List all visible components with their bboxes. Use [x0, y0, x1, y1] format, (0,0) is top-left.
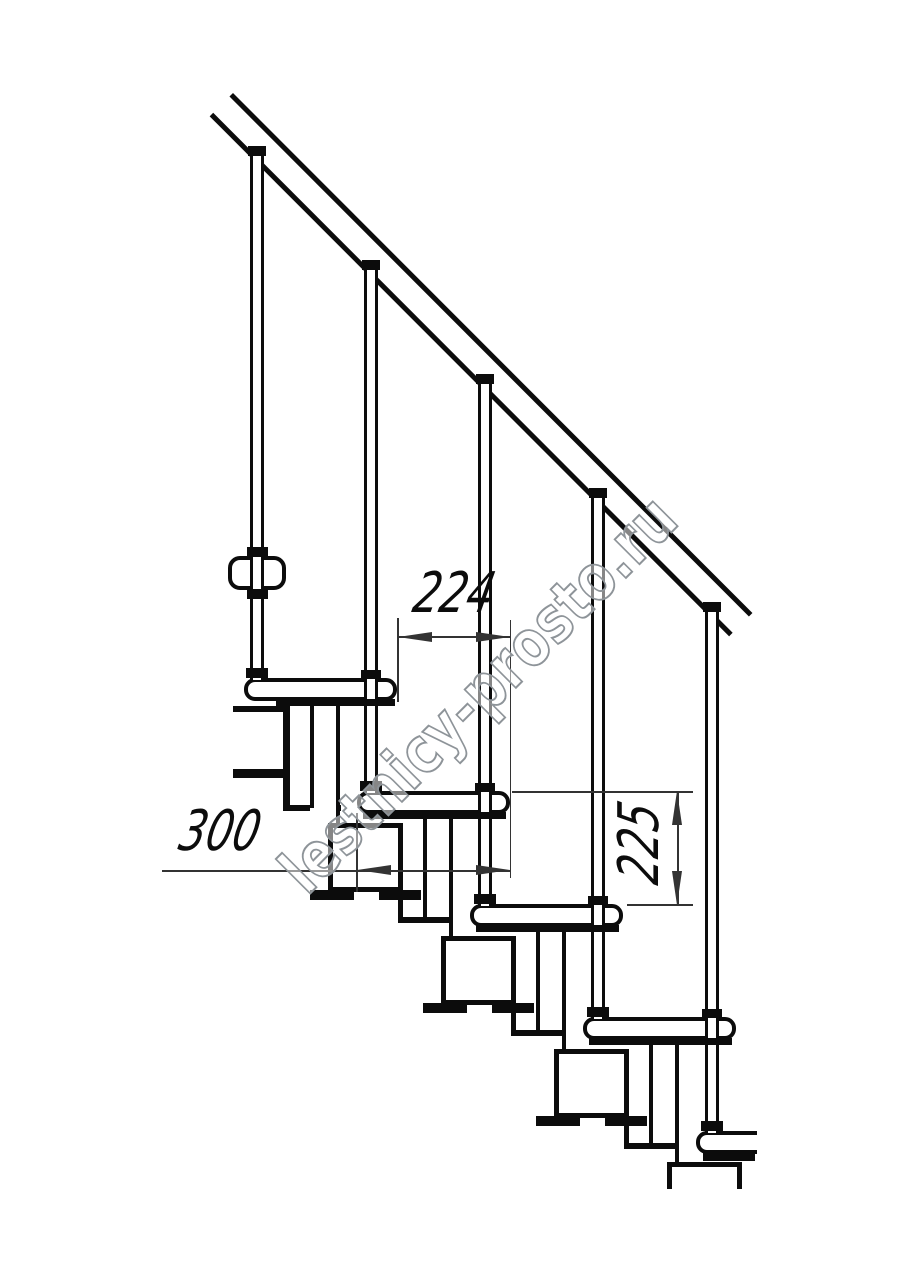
tread-connector-nub — [360, 781, 382, 791]
tread-connector-nub — [474, 894, 496, 904]
dimension-arrow — [672, 871, 682, 905]
tread-shadow — [363, 812, 506, 819]
extension-line — [627, 904, 693, 906]
baluster — [591, 496, 605, 1019]
module-foot — [310, 890, 354, 900]
baluster — [478, 382, 492, 906]
rail-connector-nub — [362, 260, 380, 270]
connector-nub — [247, 589, 268, 599]
pass-through-nub — [588, 896, 608, 905]
rail-connector-nub — [476, 374, 494, 384]
tread-shadow — [476, 925, 619, 932]
dimension-arrow — [476, 865, 510, 875]
pass-through-nub — [475, 783, 495, 792]
extension-line — [512, 791, 693, 793]
dimension-arrow — [476, 632, 510, 642]
baluster — [250, 154, 264, 680]
module-foot — [605, 1116, 647, 1126]
extension-line — [397, 618, 399, 702]
dimension-line — [162, 870, 510, 872]
staircase-technical-drawing: 224 300 225 lestnicy-prosto.ru — [0, 0, 914, 1280]
tread-shadow — [276, 699, 395, 706]
module-foot — [423, 1003, 467, 1013]
rail-connector-nub — [589, 488, 607, 498]
dimension-label-riser-height: 225 — [611, 810, 669, 889]
stringer-neck-edge — [423, 813, 427, 921]
landing-mid-line — [233, 769, 290, 778]
stringer-neck-edge — [336, 700, 340, 827]
staircase-structure — [0, 0, 914, 1280]
landing-top-line — [233, 706, 290, 712]
rail-connector-nub — [248, 146, 266, 156]
extension-line — [510, 620, 512, 878]
module-connector — [511, 1030, 566, 1036]
dimension-arrow — [357, 865, 391, 875]
module-connector — [398, 917, 453, 923]
stringer-neck-edge — [536, 926, 540, 1034]
tread-connector-nub — [587, 1007, 609, 1017]
landing-edge-line — [283, 706, 290, 811]
tread-shadow — [589, 1038, 732, 1045]
stringer-neck-edge — [649, 1039, 653, 1147]
dimension-label-step-run: 224 — [409, 565, 488, 623]
dimension-arrow — [398, 632, 432, 642]
module-foot — [379, 890, 421, 900]
pass-through-nub — [361, 670, 381, 679]
dimension-label-tread-depth: 300 — [175, 803, 254, 861]
stringer-module — [554, 1049, 629, 1118]
module-foot — [492, 1003, 534, 1013]
tread — [696, 1131, 757, 1154]
stringer-neck-edge — [310, 700, 314, 808]
module-foot — [536, 1116, 580, 1126]
baluster — [705, 610, 719, 1133]
tread-connector-nub — [246, 668, 268, 678]
stringer-module — [441, 936, 516, 1005]
stringer-module — [667, 1162, 742, 1189]
baluster — [364, 268, 378, 793]
rail-connector-nub — [703, 602, 721, 612]
pass-through-nub — [702, 1009, 722, 1018]
tread-shadow — [703, 1152, 755, 1161]
extension-line — [356, 813, 358, 892]
module-connector — [624, 1143, 679, 1149]
dimension-arrow — [672, 791, 682, 825]
tread-connector-nub — [701, 1121, 723, 1131]
connector-nub — [247, 547, 268, 557]
stringer-module — [328, 823, 403, 892]
